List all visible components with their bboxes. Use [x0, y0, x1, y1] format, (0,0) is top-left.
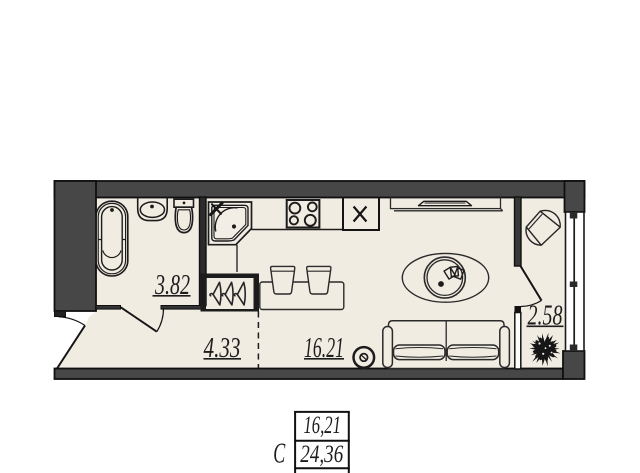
svg-text:16,21: 16,21 — [303, 410, 341, 439]
svg-text:С: С — [273, 439, 285, 470]
svg-text:24,36: 24,36 — [300, 439, 343, 468]
